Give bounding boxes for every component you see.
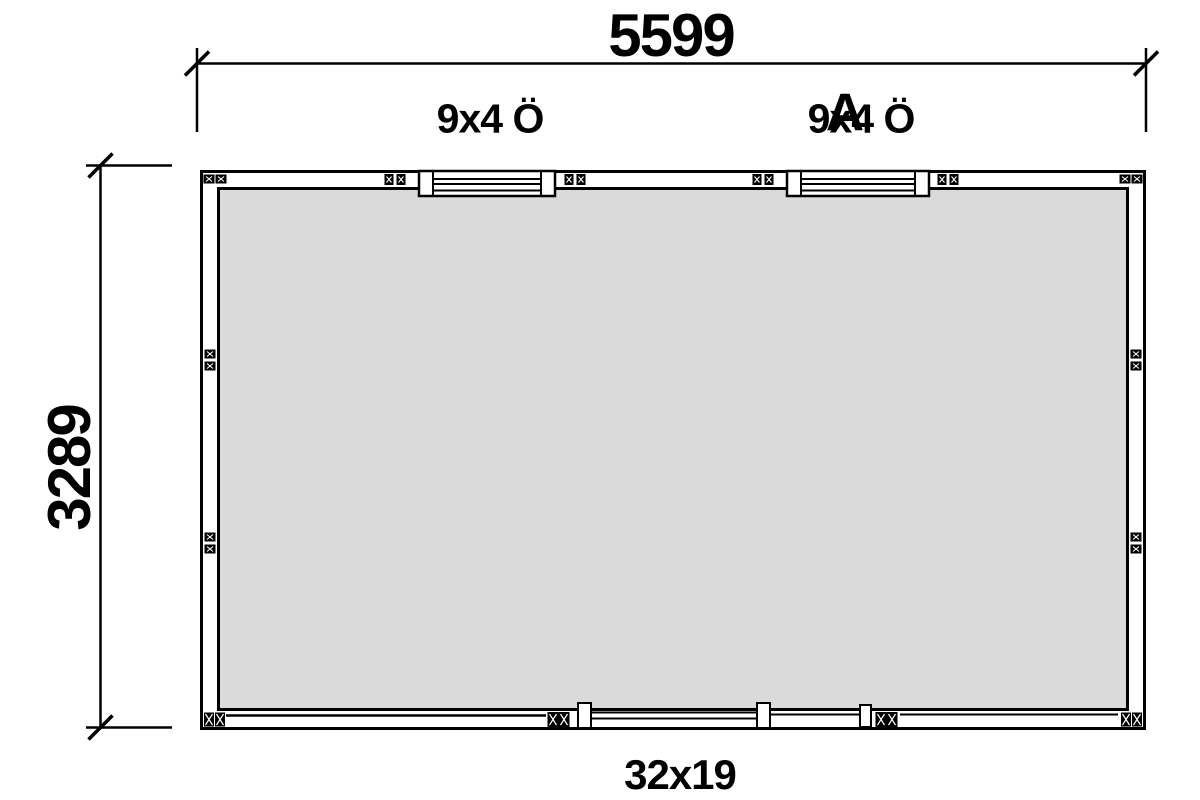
floor-plan-svg — [0, 0, 1200, 800]
footprint-label: 32x19 — [624, 754, 736, 796]
wall-stud — [397, 174, 406, 185]
door-jamb — [860, 705, 871, 727]
wall-stud — [205, 362, 216, 371]
wall-stud — [1131, 545, 1142, 554]
wall-stud — [876, 713, 886, 727]
wall-stud — [1131, 533, 1142, 542]
section-marker-a: A — [826, 87, 864, 140]
door-jamb — [578, 703, 591, 728]
corner-stud — [1120, 175, 1131, 184]
dimension-top-value: 5599 — [608, 6, 733, 66]
window-1 — [419, 171, 555, 196]
interior-floor — [218, 188, 1128, 710]
window-2 — [787, 171, 929, 196]
wall-stud — [565, 174, 574, 185]
corner-stud — [204, 713, 214, 727]
wall-stud — [577, 174, 586, 185]
corner-stud — [204, 175, 215, 184]
wall-stud — [385, 174, 394, 185]
dimension-left-value: 3289 — [40, 405, 100, 530]
wall-stud — [950, 174, 959, 185]
wall-stud — [753, 174, 762, 185]
corner-stud — [1132, 713, 1142, 727]
corner-stud — [216, 175, 227, 184]
wall-stud — [938, 174, 947, 185]
wall-stud — [887, 713, 897, 727]
corner-stud — [1132, 175, 1143, 184]
wall-stud — [205, 545, 216, 554]
wall-stud — [559, 713, 569, 727]
corner-stud — [215, 713, 225, 727]
wall-stud — [765, 174, 774, 185]
window-1-label: 9x4 Ö — [437, 99, 544, 140]
door-jamb — [757, 703, 770, 728]
wall-stud — [1131, 350, 1142, 359]
corner-stud — [1121, 713, 1131, 727]
wall-stud — [1131, 362, 1142, 371]
drawing-canvas: 5599 3289 9x4 Ö 9x4 Ö A 32x19 — [0, 0, 1200, 800]
wall-stud — [548, 713, 558, 727]
wall-stud — [205, 533, 216, 542]
wall-stud — [205, 350, 216, 359]
